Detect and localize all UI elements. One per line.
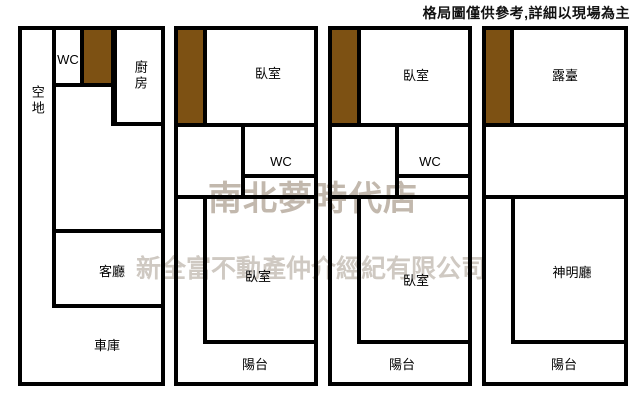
wall bbox=[203, 199, 207, 344]
wall bbox=[510, 30, 514, 127]
wall bbox=[332, 123, 468, 127]
wall bbox=[357, 199, 361, 344]
room-label-bedroom-upper: 臥室 bbox=[255, 66, 281, 82]
room-label-wc: WC bbox=[270, 154, 292, 170]
wall bbox=[486, 195, 624, 199]
wall bbox=[52, 229, 161, 233]
wall bbox=[178, 195, 314, 199]
room-label-kitchen: 廚房 bbox=[132, 60, 148, 92]
room-label-wc: WC bbox=[57, 52, 79, 68]
room-label-bedroom-lower: 臥室 bbox=[245, 269, 271, 285]
room-label-bedroom-upper: 臥室 bbox=[403, 68, 429, 84]
staircase bbox=[332, 30, 357, 123]
floor-plan-image: 格局圖僅供參考,詳細以現場為主 南北夢時代店 新全富不動產仲介經紀有限公司 空地… bbox=[0, 0, 640, 407]
wall bbox=[332, 195, 468, 199]
floor-plan-1: 空地 WC 廚房 客廳 車庫 bbox=[18, 26, 165, 386]
wall bbox=[395, 127, 399, 195]
floor-plan-3: 臥室 WC 臥室 陽台 bbox=[328, 26, 472, 386]
wall bbox=[52, 30, 56, 308]
wall bbox=[178, 123, 314, 127]
wall bbox=[203, 30, 207, 123]
room-label-balcony: 陽台 bbox=[551, 357, 577, 373]
room-label-vacant-lot: 空地 bbox=[29, 85, 45, 117]
floor-plan-4: 露臺 神明廳 陽台 bbox=[482, 26, 628, 386]
room-label-wc: WC bbox=[419, 154, 441, 170]
room-label-balcony: 陽台 bbox=[242, 357, 268, 373]
wall bbox=[357, 30, 361, 123]
wall bbox=[511, 199, 515, 344]
wall bbox=[52, 83, 117, 87]
room-label-terrace: 露臺 bbox=[552, 68, 578, 84]
staircase bbox=[486, 30, 510, 123]
wall bbox=[241, 127, 245, 195]
wall bbox=[511, 340, 624, 344]
wall bbox=[203, 340, 314, 344]
room-label-bedroom-lower: 臥室 bbox=[403, 273, 429, 289]
wall bbox=[357, 340, 468, 344]
room-label-garage: 車庫 bbox=[94, 338, 120, 354]
wall bbox=[486, 123, 624, 127]
wall bbox=[395, 174, 468, 178]
disclaimer-text: 格局圖僅供參考,詳細以現場為主 bbox=[423, 3, 630, 23]
floor-plan-2: 臥室 WC 臥室 陽台 bbox=[174, 26, 318, 386]
room-label-living-room: 客廳 bbox=[99, 264, 125, 280]
wall bbox=[241, 174, 314, 178]
room-label-shrine-hall: 神明廳 bbox=[552, 265, 591, 281]
wall bbox=[111, 30, 117, 126]
wall bbox=[52, 304, 161, 308]
staircase bbox=[84, 30, 111, 83]
room-label-balcony: 陽台 bbox=[389, 357, 415, 373]
staircase bbox=[178, 30, 203, 123]
wall bbox=[111, 122, 161, 126]
